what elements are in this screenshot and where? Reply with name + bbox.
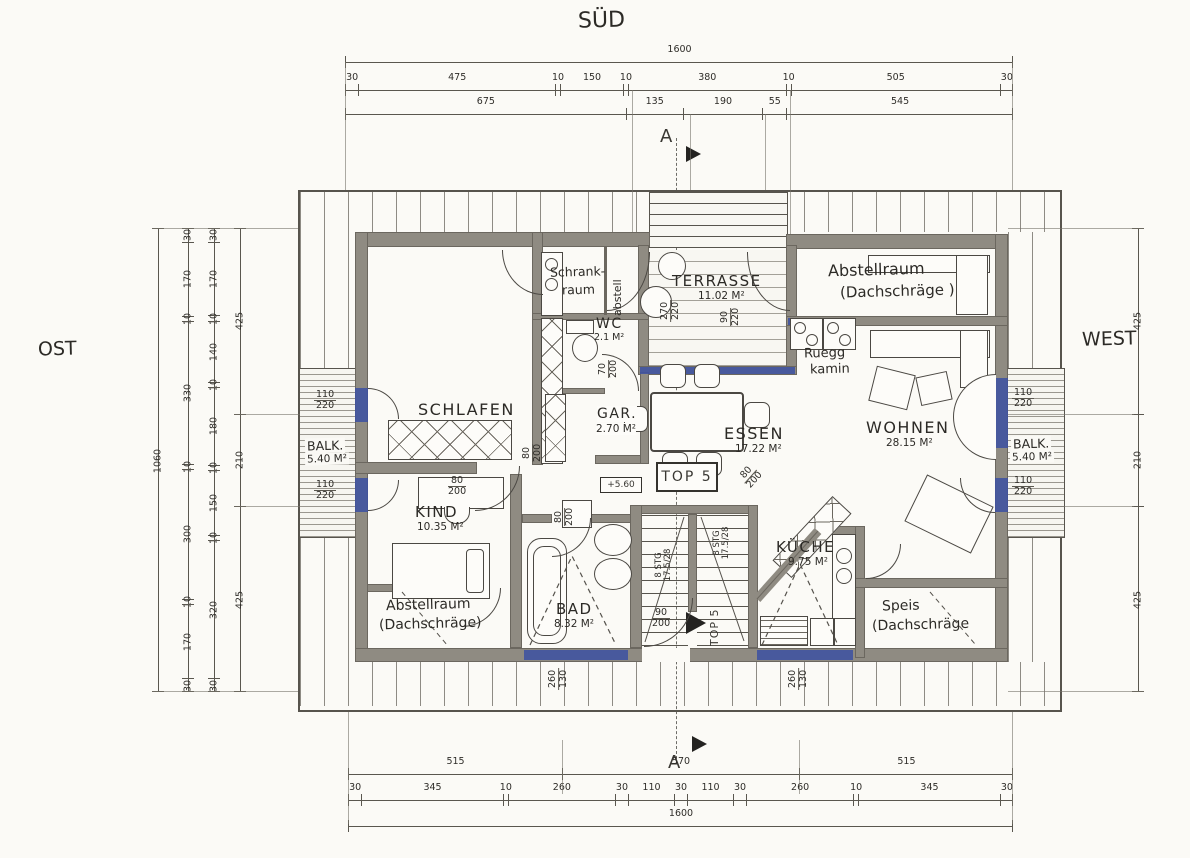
dim-segment: 425 <box>234 506 246 692</box>
dim-segment: 30 <box>615 794 628 806</box>
extension-line <box>345 62 346 190</box>
extension-line <box>234 506 300 507</box>
extension-line <box>1008 414 1134 415</box>
window-dim: 110220 <box>1012 388 1034 410</box>
dim-segment: 425 <box>1132 228 1144 414</box>
window-dim: 260130 <box>548 668 570 690</box>
window-dim: 260130 <box>788 668 810 690</box>
label-kamin-1: Ruegg <box>804 345 846 361</box>
label-kamin-2: kamin <box>810 361 850 377</box>
window-dim: 110220 <box>314 480 336 502</box>
room-label-schrankraum-2: raum <box>562 282 595 298</box>
dim-chain-left-2: 301701014010180101501032030 <box>208 228 220 692</box>
door-dim: 270220 <box>660 300 682 322</box>
extension-line <box>790 90 791 234</box>
room-area-kind: 10.35 M² <box>417 521 464 533</box>
room-label-essen: ESSEN <box>724 424 784 443</box>
extension-line <box>632 90 633 232</box>
dim-segment: 505 <box>791 84 1000 96</box>
room-label-wohnen: WOHNEN <box>866 418 950 437</box>
room-area-wc: 2.1 M² <box>594 332 624 343</box>
dim-segment: 260 <box>746 794 853 806</box>
room-label-speis: Speis <box>882 598 920 615</box>
window-dim: 90220 <box>720 308 742 326</box>
dim-segment: 1600 <box>348 820 1013 832</box>
unit-label-box: TOP 5 <box>656 462 718 492</box>
dim-chain-left-3: 425210425 <box>234 228 246 692</box>
dim-segment: 675 <box>345 108 626 120</box>
dim-segment: 380 <box>628 84 786 96</box>
room-label-schrankraum-1: Schrank- <box>550 263 606 279</box>
dim-segment: 30 <box>182 678 194 692</box>
extension-line <box>765 114 766 190</box>
dim-segment: 425 <box>1132 506 1144 692</box>
door-dim: 80200 <box>522 444 544 462</box>
room-area-gar: 2.70 M² <box>596 423 636 435</box>
extension-line <box>1008 228 1144 229</box>
room-label-kind: KIND <box>415 503 458 521</box>
dim-segment: 345 <box>361 794 503 806</box>
dim-segment: 170 <box>208 242 220 316</box>
window-dim: 110220 <box>1012 476 1034 498</box>
room-area-terrasse: 11.02 M² <box>698 290 745 302</box>
dim-chain-bottom-detail: 30345102603011030110302601034530 <box>348 794 1013 806</box>
dim-segment: 210 <box>1132 414 1144 506</box>
extension-line <box>234 414 300 415</box>
room-label-abstellraum-sued: Abstellraum <box>386 596 471 614</box>
dim-chain-top-detail: 3047510150103801050530 <box>345 84 1013 96</box>
room-label-kueche: KÜCHE <box>776 538 835 556</box>
dim-segment: 170 <box>182 242 194 316</box>
room-note-speis: (Dachschräge <box>872 616 969 635</box>
dim-chain-left-total: 1060 <box>152 228 164 692</box>
extension-line <box>562 740 563 794</box>
door-dim: 90200 <box>652 608 670 630</box>
dim-chain-bottom-total: 1600 <box>348 820 1013 832</box>
dim-segment: 345 <box>858 794 1000 806</box>
extension-line <box>799 740 800 794</box>
room-area-wohnen: 28.15 M² <box>886 437 933 449</box>
dim-chain-top-sub: 67513519055545 <box>345 108 1013 120</box>
extension-line <box>152 228 298 229</box>
room-note-abstellraum-sued: (Dachschräge) <box>379 615 482 634</box>
dim-segment: 140 <box>208 321 220 382</box>
dim-segment: 30 <box>345 84 358 96</box>
dim-segment: 110 <box>628 794 674 806</box>
dim-segment: 150 <box>208 470 220 535</box>
dim-segment: 30 <box>674 794 687 806</box>
room-area-bad: 8.32 M² <box>554 618 594 630</box>
dim-segment: 180 <box>208 387 220 465</box>
dim-segment: 30 <box>208 678 220 692</box>
door-dim: 80200 <box>448 476 466 498</box>
dim-segment: 30 <box>208 228 220 242</box>
dim-segment: 210 <box>234 414 246 506</box>
dim-segment: 30 <box>348 794 361 806</box>
room-label-wc: WC <box>596 316 623 332</box>
dim-segment: 1600 <box>345 56 1013 68</box>
dim-chain-top-total: 1600 <box>345 56 1013 68</box>
dim-segment: 425 <box>234 228 246 414</box>
dim-segment: 300 <box>182 469 194 599</box>
dim-chain-right: 425210425 <box>1132 228 1144 692</box>
dim-chain-bottom-main: 515570515 <box>348 768 1013 780</box>
dim-segment: 320 <box>208 540 220 678</box>
dim-segment: 330 <box>182 321 194 464</box>
dim-segment: 30 <box>733 794 746 806</box>
dim-segment: 570 <box>562 768 799 780</box>
room-label-abstell: abstell <box>611 254 624 316</box>
room-label-terrasse: TERRASSE <box>672 272 762 290</box>
room-note-abstellraum-nord: (Dachschräge ) <box>840 281 955 302</box>
door-dim: 70200 <box>598 360 620 378</box>
dim-segment: 1060 <box>152 228 164 692</box>
dim-segment: 515 <box>348 768 562 780</box>
extension-line <box>1008 691 1144 692</box>
dim-segment: 110 <box>687 794 733 806</box>
extension-line <box>152 691 298 692</box>
floor-plan-sheet: SÜD OST WEST A A BALK. 5.40 M² BALK. 5.4… <box>0 0 1190 858</box>
door-dim: 80200 <box>554 508 576 526</box>
dim-segment: 30 <box>182 228 194 242</box>
dim-segment: 515 <box>799 768 1013 780</box>
room-label-schlafen: SCHLAFEN <box>418 400 515 419</box>
window-dim: 110220 <box>314 390 336 412</box>
dim-segment: 170 <box>182 604 194 678</box>
extension-line <box>690 114 691 190</box>
room-label-abstellraum-nord: Abstellraum <box>828 259 925 281</box>
extension-line <box>1012 712 1013 824</box>
room-area-essen: 17.22 M² <box>735 443 782 455</box>
dim-segment: 150 <box>560 84 623 96</box>
dim-segment: 260 <box>508 794 615 806</box>
extension-line <box>1008 506 1134 507</box>
room-label-gar: GAR. <box>597 406 637 422</box>
room-label-bad: BAD <box>556 600 593 618</box>
dim-chain-left-1: 3017010330103001017030 <box>182 228 194 692</box>
elevation-box: +5.60 <box>600 477 642 493</box>
dim-segment: 475 <box>358 84 555 96</box>
extension-line <box>1012 62 1013 190</box>
dim-segment: 135 <box>626 108 683 120</box>
extension-line <box>348 712 349 824</box>
dim-segment: 190 <box>683 108 763 120</box>
room-area-kueche: 9.75 M² <box>788 556 828 568</box>
dim-segment: 545 <box>786 108 1013 120</box>
